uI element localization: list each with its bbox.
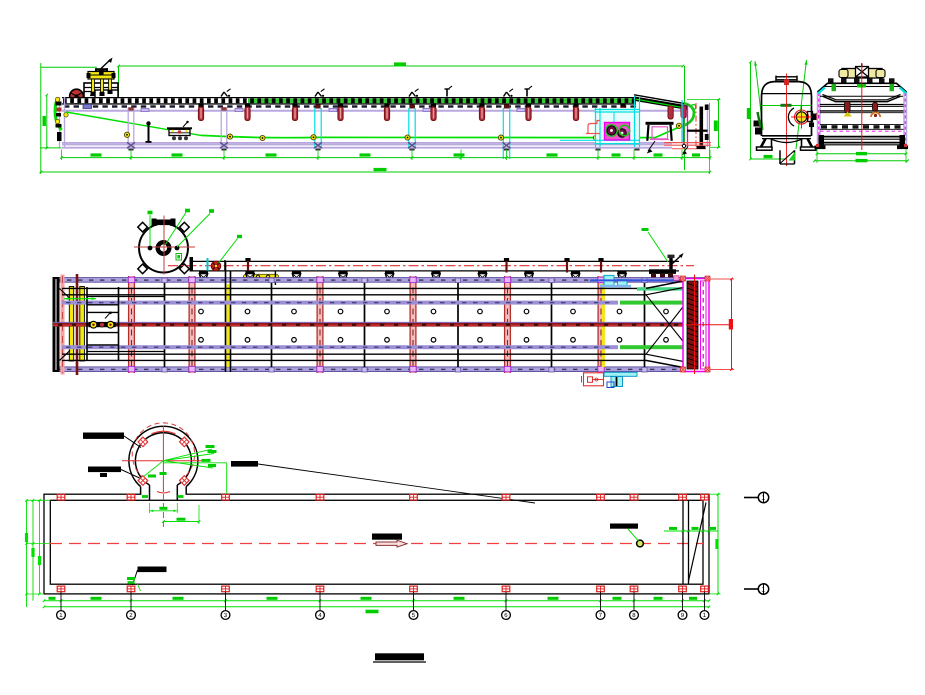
svg-text:1: 1 [761,495,765,502]
svg-text:1: 1 [761,587,765,594]
